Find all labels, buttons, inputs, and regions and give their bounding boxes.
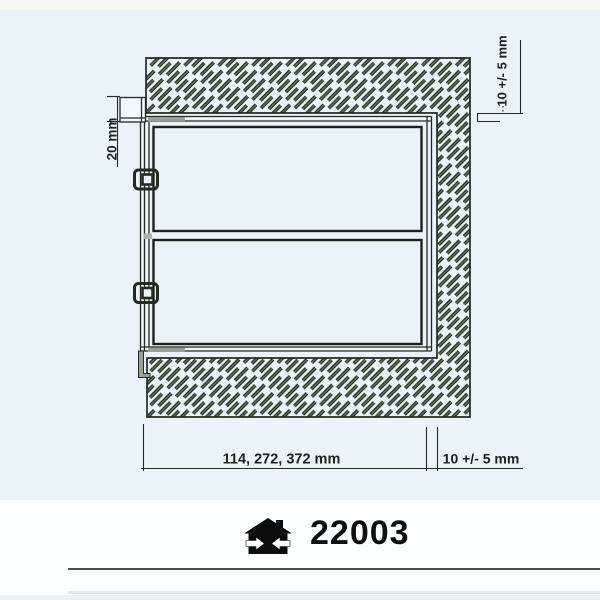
dim-label-module-widths: 114, 272, 372 mm bbox=[223, 452, 341, 468]
dim-label-top-gap: 10 +/- 5 mm bbox=[495, 35, 510, 106]
top-seal bbox=[148, 117, 185, 121]
section-drawing: 20 mm 10 +/- 5 mm 114, 272, 372 mm 10 +/… bbox=[0, 0, 600, 500]
bottom-seal bbox=[148, 348, 185, 353]
bottom-strip bbox=[0, 595, 600, 600]
divider-rule-dark bbox=[68, 568, 600, 570]
footer-band bbox=[0, 500, 600, 595]
glass-panel-upper bbox=[154, 127, 422, 231]
divider-rule-light bbox=[68, 591, 600, 594]
house-width-arrows-icon bbox=[245, 518, 291, 555]
frame-step-profile bbox=[120, 98, 146, 123]
door-frame bbox=[140, 117, 432, 352]
spec-sheet: 20 mm 10 +/- 5 mm 114, 272, 372 mm 10 +/… bbox=[0, 0, 600, 600]
glass-panel-lower bbox=[154, 240, 422, 344]
product-code: 22003 bbox=[310, 514, 410, 553]
dim-label-frame-overhang: 20 mm bbox=[105, 118, 120, 161]
dim-label-side-gap: 10 +/- 5 mm bbox=[443, 451, 520, 467]
mid-rail-junction bbox=[144, 234, 152, 240]
wall-hatch-section bbox=[146, 58, 470, 417]
